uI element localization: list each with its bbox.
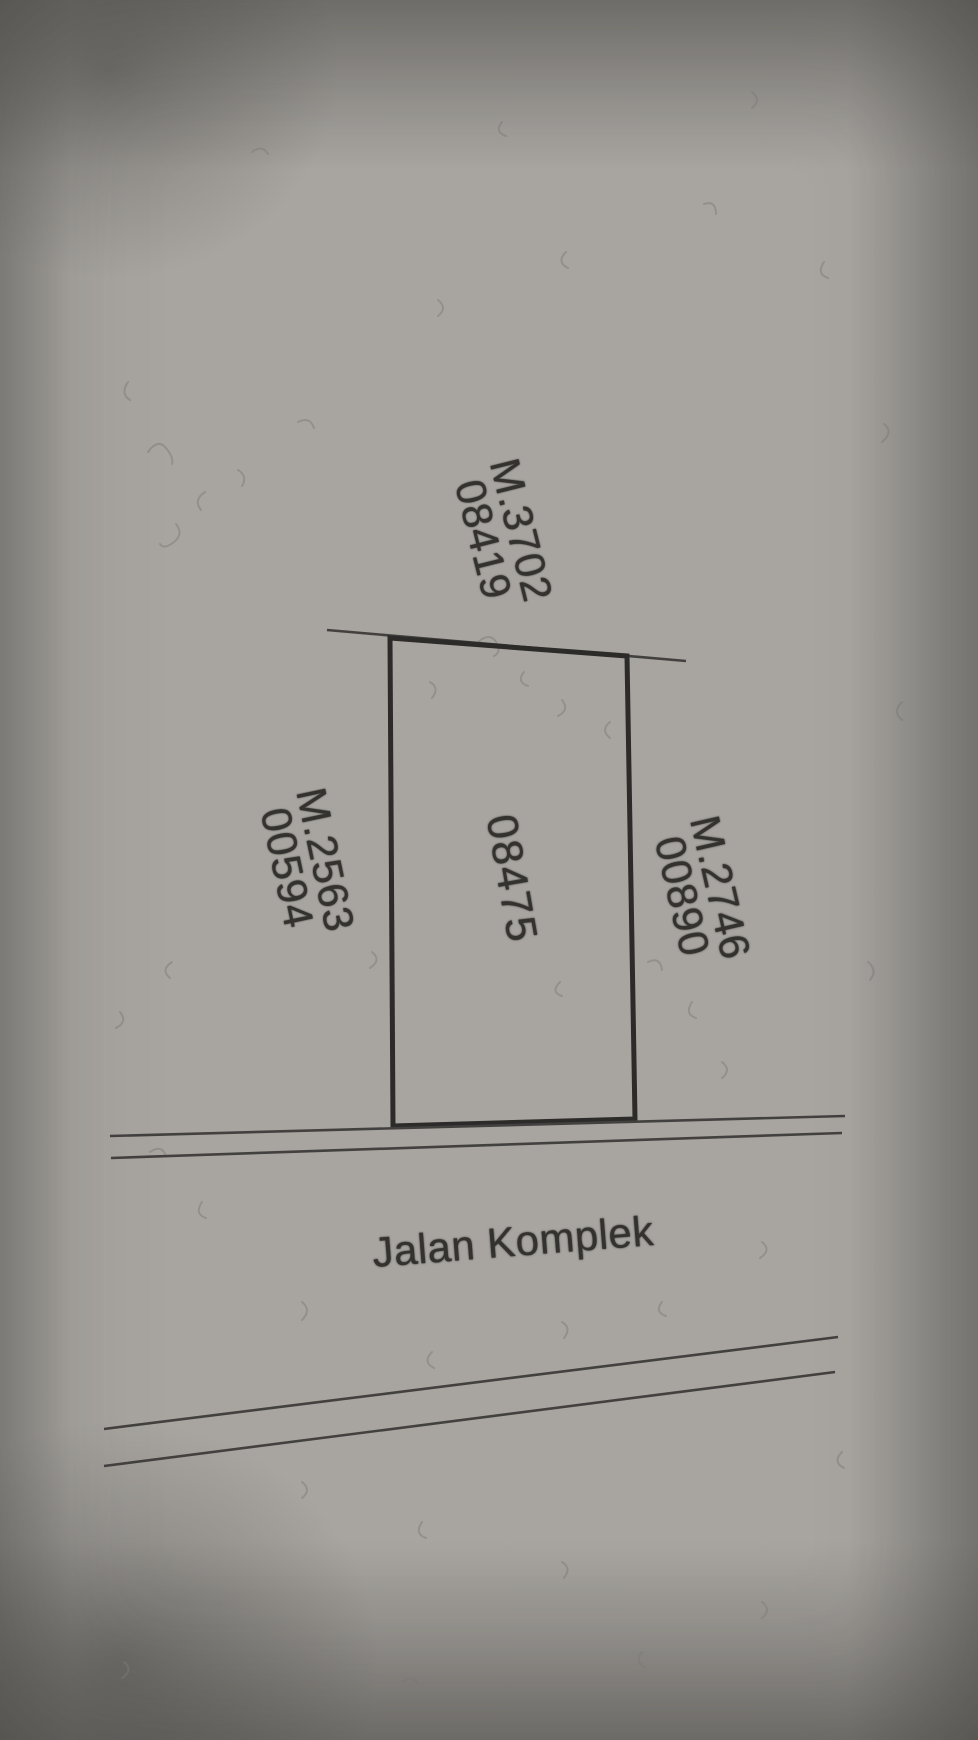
road-edge-upper-line-2 [111,1133,842,1158]
road-edge-lower-line-2 [104,1372,835,1466]
road-edge-upper-line-1 [110,1116,845,1136]
road-edge-lower-line-1 [104,1337,838,1429]
document-photo: M.3702 08419 M.2746 00890 M.2563 00594 0… [0,0,978,1740]
